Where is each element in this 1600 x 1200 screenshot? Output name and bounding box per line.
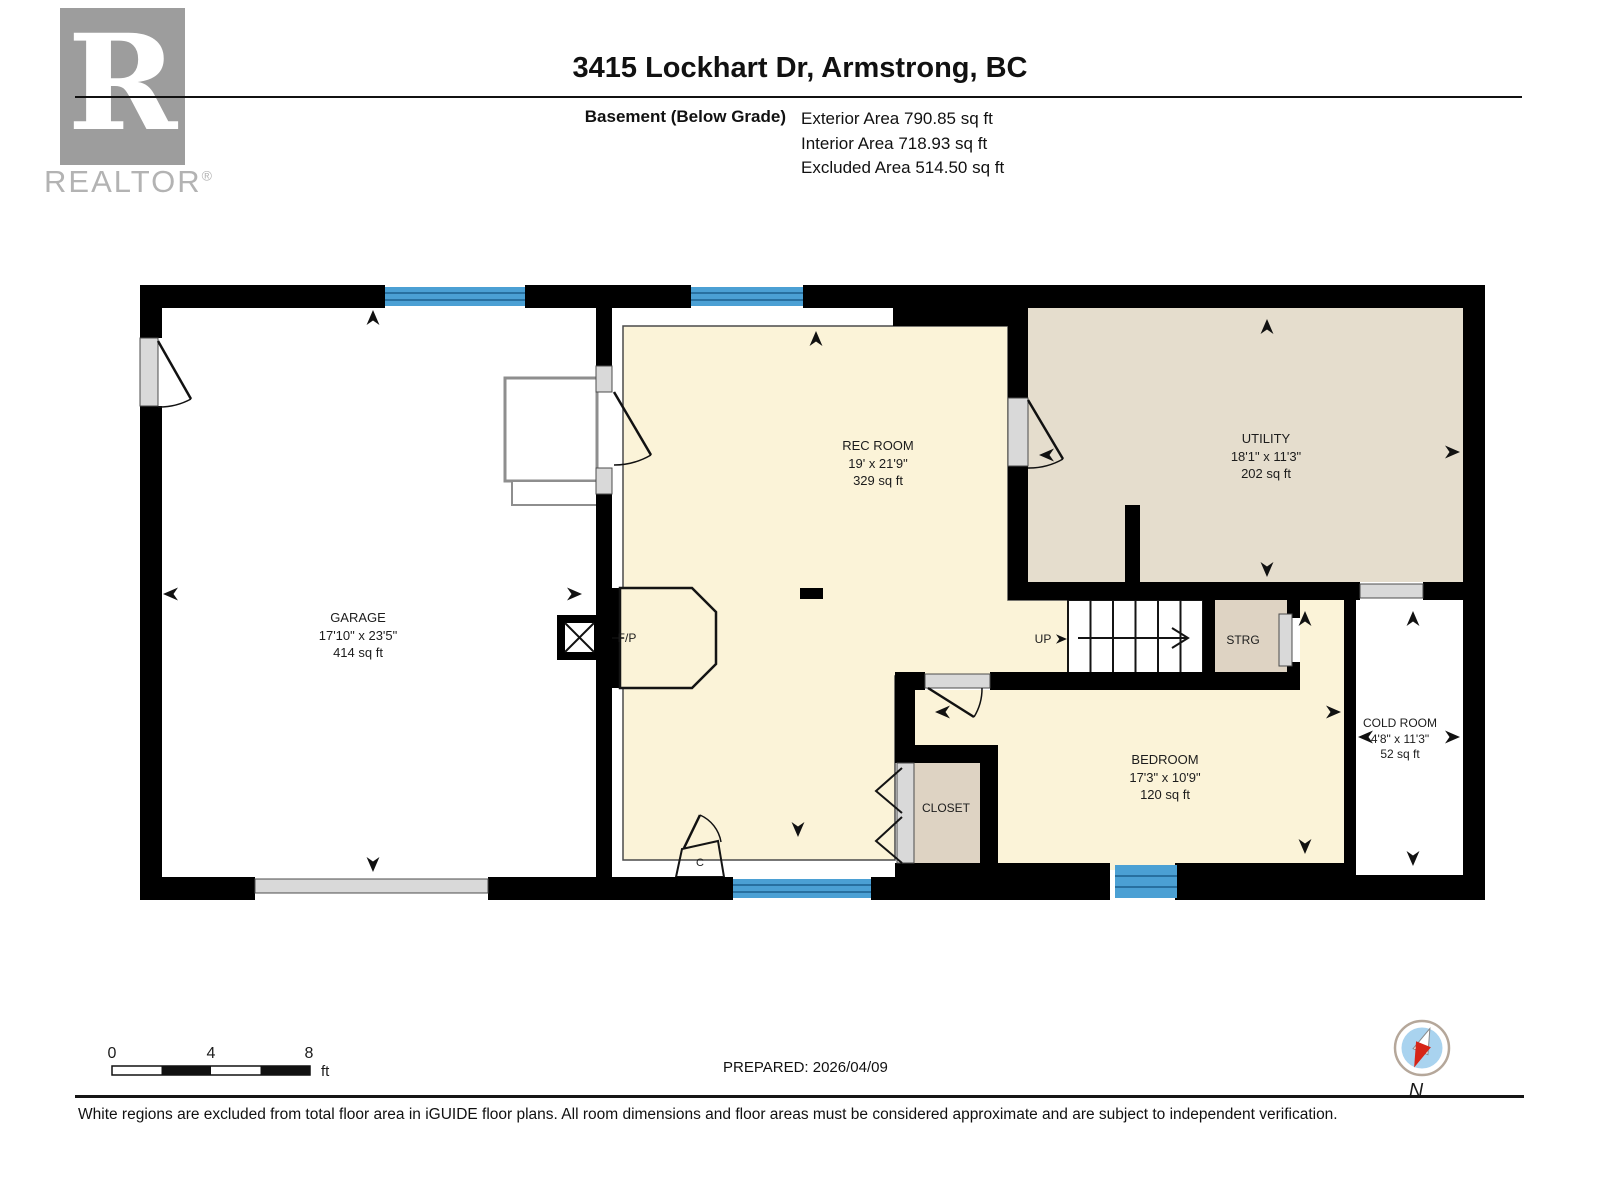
bedroom-label: BEDROOM — [1131, 752, 1198, 767]
garage-label: GARAGE — [330, 610, 386, 625]
utility-label: UTILITY — [1242, 431, 1291, 446]
exterior-landing — [505, 378, 597, 505]
utility-area: 202 sq ft — [1241, 466, 1291, 481]
compass-north-label: N — [1409, 1080, 1424, 1102]
garage-entry-door — [158, 341, 191, 399]
garage-entry-sill — [140, 338, 158, 406]
garage-dims: 17'10" x 23'5" — [319, 628, 398, 643]
scale-tick-4: 4 — [207, 1045, 216, 1062]
closet-door-track — [897, 763, 914, 863]
cold-room-opening — [1360, 584, 1423, 598]
garage-window — [385, 287, 525, 306]
garage-door — [255, 877, 488, 900]
garage-area: 414 sq ft — [333, 645, 383, 660]
support-post — [800, 588, 823, 599]
dimension-arrow — [567, 588, 582, 601]
staircase — [1068, 600, 1203, 675]
rec-room-bottom-window — [733, 879, 871, 898]
rec-room-area: 329 sq ft — [853, 473, 903, 488]
small-closet-label: C — [696, 857, 704, 869]
scale-unit: ft — [321, 1063, 330, 1080]
bedroom-window — [1115, 865, 1177, 898]
bedroom-door-sill — [925, 674, 990, 688]
bedroom-area: 120 sq ft — [1140, 787, 1190, 802]
dimension-arrow — [367, 310, 380, 325]
dimension-arrow — [1407, 851, 1420, 866]
footer-divider — [75, 1095, 1524, 1098]
scale-tick-0: 0 — [108, 1045, 117, 1062]
rec-room-top-window — [691, 287, 803, 306]
dimension-arrow — [163, 588, 178, 601]
dimension-arrow — [1445, 731, 1460, 744]
scale-bar: 0 4 8 ft — [108, 1045, 331, 1080]
compass-icon: N — [1395, 1021, 1449, 1102]
fireplace-label: F/P — [618, 631, 637, 645]
storage-label: STRG — [1226, 633, 1259, 647]
stairs-up-label: UP — [1035, 632, 1052, 646]
bedroom-dims: 17'3" x 10'9" — [1129, 770, 1201, 785]
dimension-arrow — [367, 857, 380, 872]
dimension-arrow — [1407, 611, 1420, 626]
rec-room-label: REC ROOM — [842, 438, 914, 453]
cold-room-label: COLD ROOM — [1363, 716, 1437, 730]
rec-room-dims: 19' x 21'9" — [848, 456, 908, 471]
cold-room-area: 52 sq ft — [1380, 747, 1420, 761]
utility-door-sill — [1008, 398, 1028, 466]
cold-room-dims: 4'8" x 11'3" — [1371, 732, 1429, 746]
floor-plan: GARAGE 17'10" x 23'5" 414 sq ft REC ROOM… — [0, 0, 1600, 1200]
prepared-date: PREPARED: 2026/04/09 — [723, 1059, 888, 1076]
utility-dims: 18'1" x 11'3" — [1231, 449, 1302, 464]
closet-label: CLOSET — [922, 801, 971, 815]
disclaimer-text: White regions are excluded from total fl… — [78, 1106, 1528, 1124]
fireplace — [557, 588, 716, 688]
storage-door — [1279, 614, 1292, 666]
scale-tick-8: 8 — [305, 1045, 314, 1062]
